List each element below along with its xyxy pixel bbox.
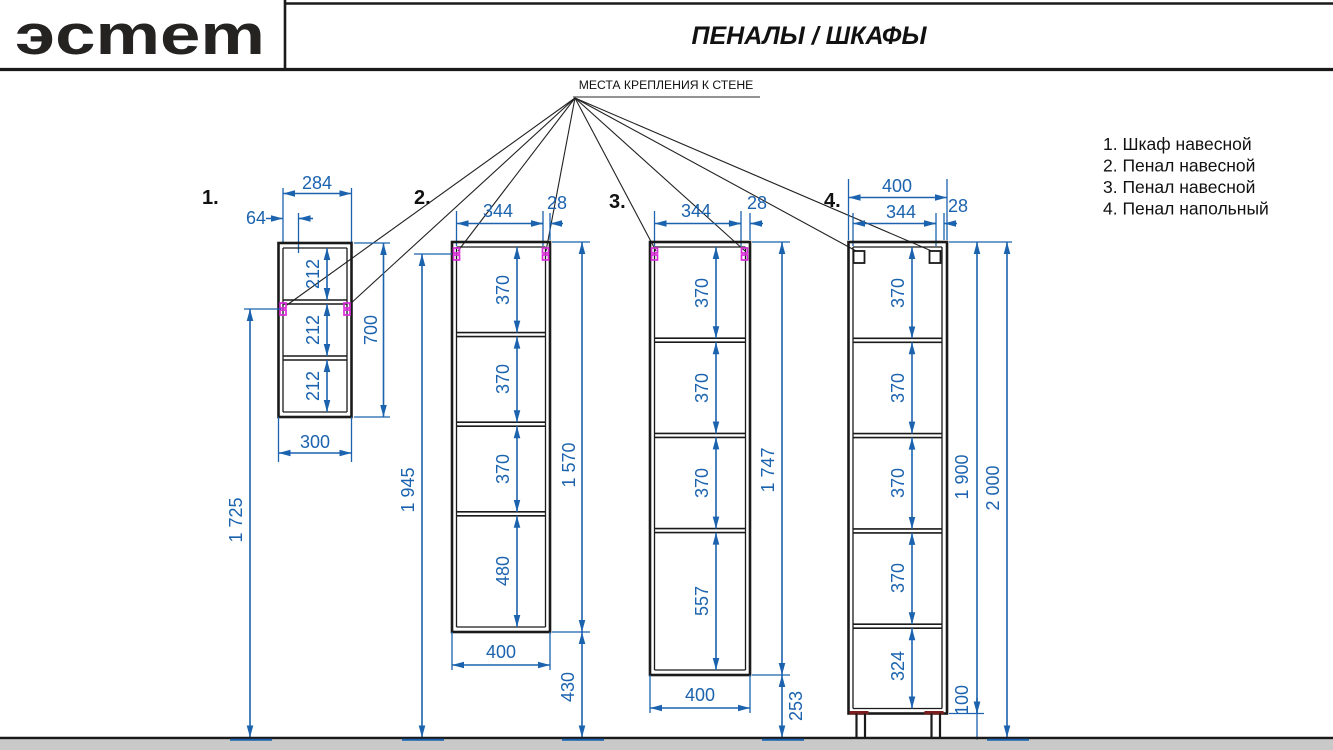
legend-item-2: 2. Пенал навесной bbox=[1103, 156, 1255, 176]
dim-cab4-section-2: 370 bbox=[888, 373, 908, 403]
cabinet-3: 3. 344 28 370 370 370 557 bbox=[609, 191, 806, 738]
dim-cab4-wall: 28 bbox=[948, 196, 968, 216]
dim-cab4-section-1: 370 bbox=[888, 278, 908, 308]
dim-cab3-height: 1 747 bbox=[758, 447, 778, 492]
legend: 1. Шкаф навесной 2. Пенал навесной 3. Пе… bbox=[1103, 134, 1269, 219]
cabinet-1: 1. 284 64 212 212 212 bbox=[202, 173, 390, 738]
cabinet-4-bracket-left-icon bbox=[854, 251, 865, 263]
dim-cab3-bottom-width: 400 bbox=[685, 685, 715, 705]
dim-cab3-floor-gap: 253 bbox=[786, 691, 806, 721]
floor bbox=[0, 738, 1333, 750]
cabinet-4-bracket-right-icon bbox=[930, 251, 941, 263]
cabinet-4: 4. 400 344 28 37 bbox=[824, 176, 1012, 750]
dim-cab1-offset: 64 bbox=[246, 208, 266, 228]
dim-cab4-inner-width: 344 bbox=[886, 202, 916, 222]
dim-cab4-legs-height: 100 bbox=[952, 685, 972, 715]
legend-item-4: 4. Пенал напольный bbox=[1103, 199, 1269, 219]
dim-cab4-section-4: 370 bbox=[888, 563, 908, 593]
dim-cab2-floor-gap: 430 bbox=[558, 672, 578, 702]
header: эcmem ПЕНАЛЫ / ШКАФЫ bbox=[0, 0, 1333, 70]
legend-item-3: 3. Пенал навесной bbox=[1103, 177, 1255, 197]
dim-cab2-section-2: 370 bbox=[493, 364, 513, 394]
dim-cab3-section-1: 370 bbox=[692, 278, 712, 308]
dim-cab2-bottom-width: 400 bbox=[486, 642, 516, 662]
cabinet-3-label: 3. bbox=[609, 191, 626, 213]
dim-cab2-section-3: 370 bbox=[493, 454, 513, 484]
cabinet-2-label: 2. bbox=[414, 187, 431, 209]
dim-cab1-section-2: 212 bbox=[303, 315, 323, 345]
dim-cab1-bottom-width: 300 bbox=[300, 432, 330, 452]
brand-logo: эcmem bbox=[15, 3, 265, 67]
dim-cab4-height: 1 900 bbox=[952, 454, 972, 499]
dim-cab1-section-3: 212 bbox=[303, 371, 323, 401]
dim-cab4-section-3: 370 bbox=[888, 468, 908, 498]
wall-mount-label: МЕСТА КРЕПЛЕНИЯ К СТЕНЕ bbox=[579, 78, 754, 92]
cabinet-4-legs bbox=[850, 711, 944, 738]
dim-cab1-height: 700 bbox=[361, 315, 381, 345]
cabinet-3-mount-right-icon bbox=[742, 248, 748, 260]
cabinet-1-label: 1. bbox=[202, 187, 219, 209]
dim-cab4-section-5: 324 bbox=[888, 651, 908, 681]
dim-cab2-height: 1 570 bbox=[559, 442, 579, 487]
dim-cab4-total-height: 2 000 bbox=[983, 465, 1003, 510]
dim-cab1-section-1: 212 bbox=[303, 259, 323, 289]
page-title: ПЕНАЛЫ / ШКАФЫ bbox=[692, 22, 928, 50]
dim-cab1-to-floor: 1 725 bbox=[226, 497, 246, 542]
legend-item-1: 1. Шкаф навесной bbox=[1103, 134, 1252, 154]
cabinet-4-label: 4. bbox=[824, 190, 841, 212]
dim-cab3-section-2: 370 bbox=[692, 373, 712, 403]
dim-cab3-wall: 28 bbox=[747, 193, 767, 213]
dim-cab3-section-4: 557 bbox=[692, 586, 712, 616]
dim-cab2-section-1: 370 bbox=[493, 275, 513, 305]
dim-cab1-top-width: 284 bbox=[302, 173, 332, 193]
dim-cab3-section-3: 370 bbox=[692, 468, 712, 498]
cabinet-2: 2. 344 28 370 370 370 480 bbox=[398, 187, 590, 738]
floor-shadow bbox=[0, 740, 1333, 750]
technical-drawing: эcmem ПЕНАЛЫ / ШКАФЫ МЕСТА КРЕПЛЕНИЯ К С… bbox=[0, 0, 1333, 750]
dim-cab4-top-width: 400 bbox=[882, 176, 912, 196]
cabinet-2-shelves bbox=[457, 333, 546, 516]
dim-cab2-mount-to-floor: 1 945 bbox=[398, 467, 418, 512]
dim-cab2-inner-width: 344 bbox=[483, 201, 513, 221]
dim-cab2-wall: 28 bbox=[547, 193, 567, 213]
cabinet-3-shelves bbox=[655, 338, 746, 532]
drawing-sheet: эcmem ПЕНАЛЫ / ШКАФЫ МЕСТА КРЕПЛЕНИЯ К С… bbox=[0, 0, 1333, 750]
dim-cab3-inner-width: 344 bbox=[681, 201, 711, 221]
dim-cab2-section-4: 480 bbox=[493, 556, 513, 586]
